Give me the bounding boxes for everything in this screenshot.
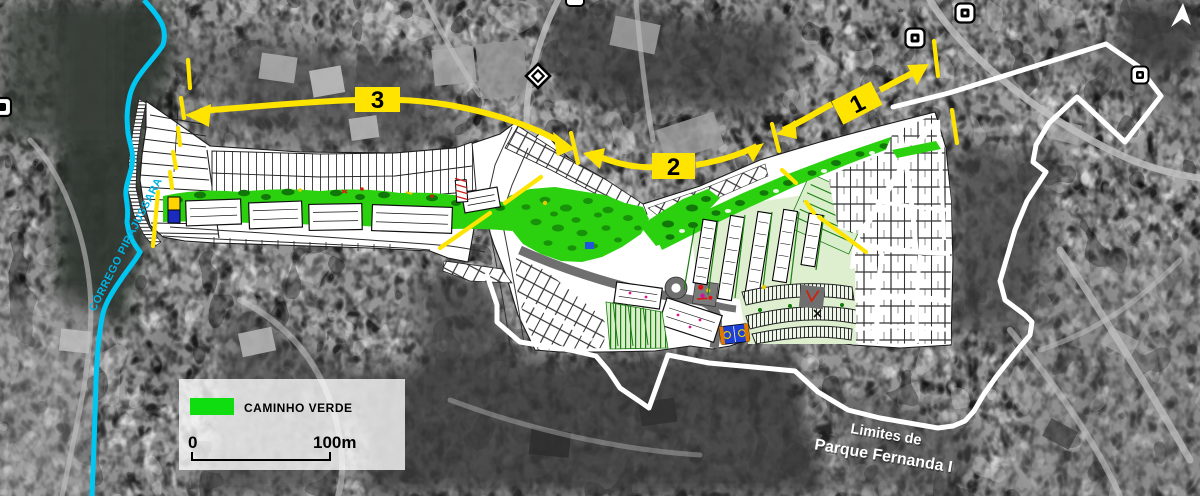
svg-text:100m: 100m xyxy=(313,433,356,452)
svg-text:2: 2 xyxy=(667,154,680,181)
svg-text:CAMINHO VERDE: CAMINHO VERDE xyxy=(244,401,353,415)
svg-text:3: 3 xyxy=(371,87,384,114)
svg-text:0: 0 xyxy=(188,433,197,452)
